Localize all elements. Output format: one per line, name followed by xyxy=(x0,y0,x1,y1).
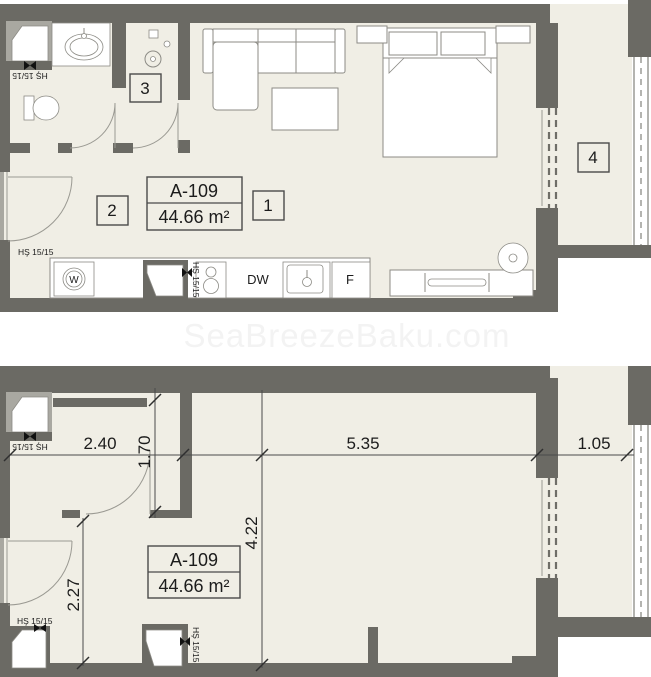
washing-machine: W xyxy=(54,262,94,296)
left-shaft xyxy=(6,624,50,672)
floorplan-drawing: HŞ 15/15 xyxy=(0,0,651,677)
toilet xyxy=(24,96,59,120)
wall-right-upper xyxy=(536,378,558,478)
kitchen-sink xyxy=(283,262,330,298)
wall-step xyxy=(512,656,536,668)
balcony-wall-top xyxy=(628,366,651,425)
round-table xyxy=(498,243,528,273)
wall-wardrobe-right xyxy=(178,23,190,100)
unit-code: A-109 xyxy=(170,181,218,201)
wall-bath-wardrobe xyxy=(112,23,126,88)
wall-bath-bottom xyxy=(62,510,80,518)
shaft-label: HŞ 15/15 xyxy=(191,262,201,298)
shower-shaft xyxy=(6,21,52,70)
faucet-icon xyxy=(82,34,87,39)
room-number-balcony: 4 xyxy=(578,143,609,172)
dim-wardrobe-width: 1.70 xyxy=(135,435,154,468)
shaft-label: HŞ 15/15 xyxy=(191,627,201,663)
wall-top xyxy=(4,366,550,393)
dim-bath-width: 2.40 xyxy=(83,434,116,453)
room-number-hall: 2 xyxy=(97,196,128,225)
apartment-floor xyxy=(2,366,558,668)
shower-shaft xyxy=(6,392,52,441)
shaft-label: HŞ 15/15 xyxy=(12,442,48,452)
fridge-label: F xyxy=(346,272,354,287)
balcony-wall-bottom xyxy=(556,245,651,258)
room-number-living: 1 xyxy=(253,191,284,220)
unit-code: A-109 xyxy=(170,550,218,570)
unit-label: A-109 44.66 m² xyxy=(148,546,240,598)
wall-left-upper xyxy=(0,366,10,538)
wall-bath-bottom xyxy=(58,143,72,153)
washer-label: W xyxy=(69,275,79,286)
wall-bottom xyxy=(0,663,558,677)
balcony-wall-bottom xyxy=(556,617,651,637)
svg-text:3: 3 xyxy=(140,79,149,98)
dim-living-width: 5.35 xyxy=(346,434,379,453)
dishwasher-label: DW xyxy=(247,272,269,287)
wall-right-upper xyxy=(536,23,558,108)
unit-area: 44.66 m² xyxy=(158,576,229,596)
balcony-wall-top xyxy=(628,0,651,57)
vanity-sink xyxy=(52,23,110,66)
svg-text:4: 4 xyxy=(588,148,597,167)
shaft-label: HŞ 15/15 xyxy=(17,616,53,626)
svg-text:1: 1 xyxy=(263,196,272,215)
wall-right-lower xyxy=(536,578,558,677)
dim-living-depth: 4.22 xyxy=(242,516,261,549)
unit-label: A-109 44.66 m² xyxy=(147,177,242,230)
wall-top xyxy=(4,4,550,23)
wall-block xyxy=(178,140,190,153)
kitchen-shaft xyxy=(142,624,190,670)
chair xyxy=(428,279,486,286)
wall-bath-bottom xyxy=(113,143,133,153)
shaft-label: HŞ 15/15 xyxy=(18,247,54,257)
wall-bottom xyxy=(0,298,558,312)
coffee-table xyxy=(272,88,338,130)
room-number-wardrobe: 3 xyxy=(130,74,161,102)
kitchen-counter: W DW F xyxy=(50,258,370,300)
floorplan-page: HŞ 15/15 xyxy=(0,0,651,677)
desk xyxy=(390,270,533,296)
dim-balcony-width: 1.05 xyxy=(577,434,610,453)
svg-text:2: 2 xyxy=(107,201,116,220)
watermark: SeaBreezeBaku.com xyxy=(183,317,510,354)
furnished-plan: HŞ 15/15 xyxy=(0,0,651,312)
fridge: F xyxy=(332,262,370,298)
balcony-floor xyxy=(556,4,632,254)
unit-area: 44.66 m² xyxy=(158,207,229,227)
dim-entry-depth: 2.27 xyxy=(64,578,83,611)
balcony-floor xyxy=(556,366,632,618)
nightstand-left xyxy=(357,26,387,43)
bed xyxy=(383,28,497,157)
wall-bath-bottom xyxy=(0,143,30,153)
wall-right-lower xyxy=(536,208,558,312)
nightstand-right xyxy=(496,26,530,43)
wall-bath-interior xyxy=(53,398,147,407)
kitchen-stub-wall xyxy=(368,627,378,667)
shaft-label: HŞ 15/15 xyxy=(12,71,48,81)
dimensioned-plan: HŞ 15/15 HŞ 15/15 HŞ 15/15 A-109 44.66 m… xyxy=(0,366,651,677)
kitchen-shaft xyxy=(143,260,192,300)
